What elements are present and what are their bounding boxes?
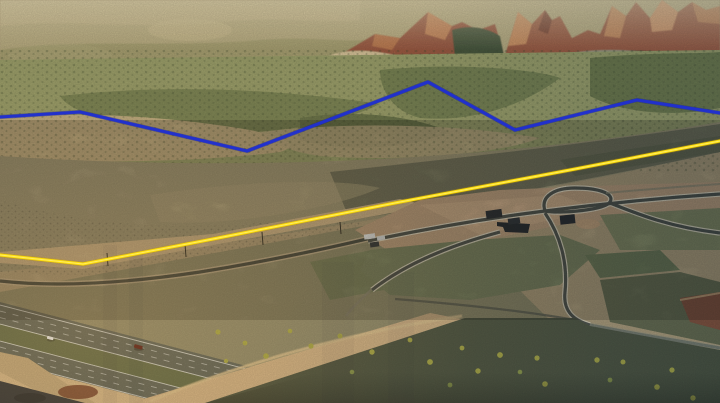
cool-shade-right <box>0 0 720 403</box>
aerial-photo-canvas <box>0 0 720 403</box>
aerial-photo <box>0 0 720 403</box>
